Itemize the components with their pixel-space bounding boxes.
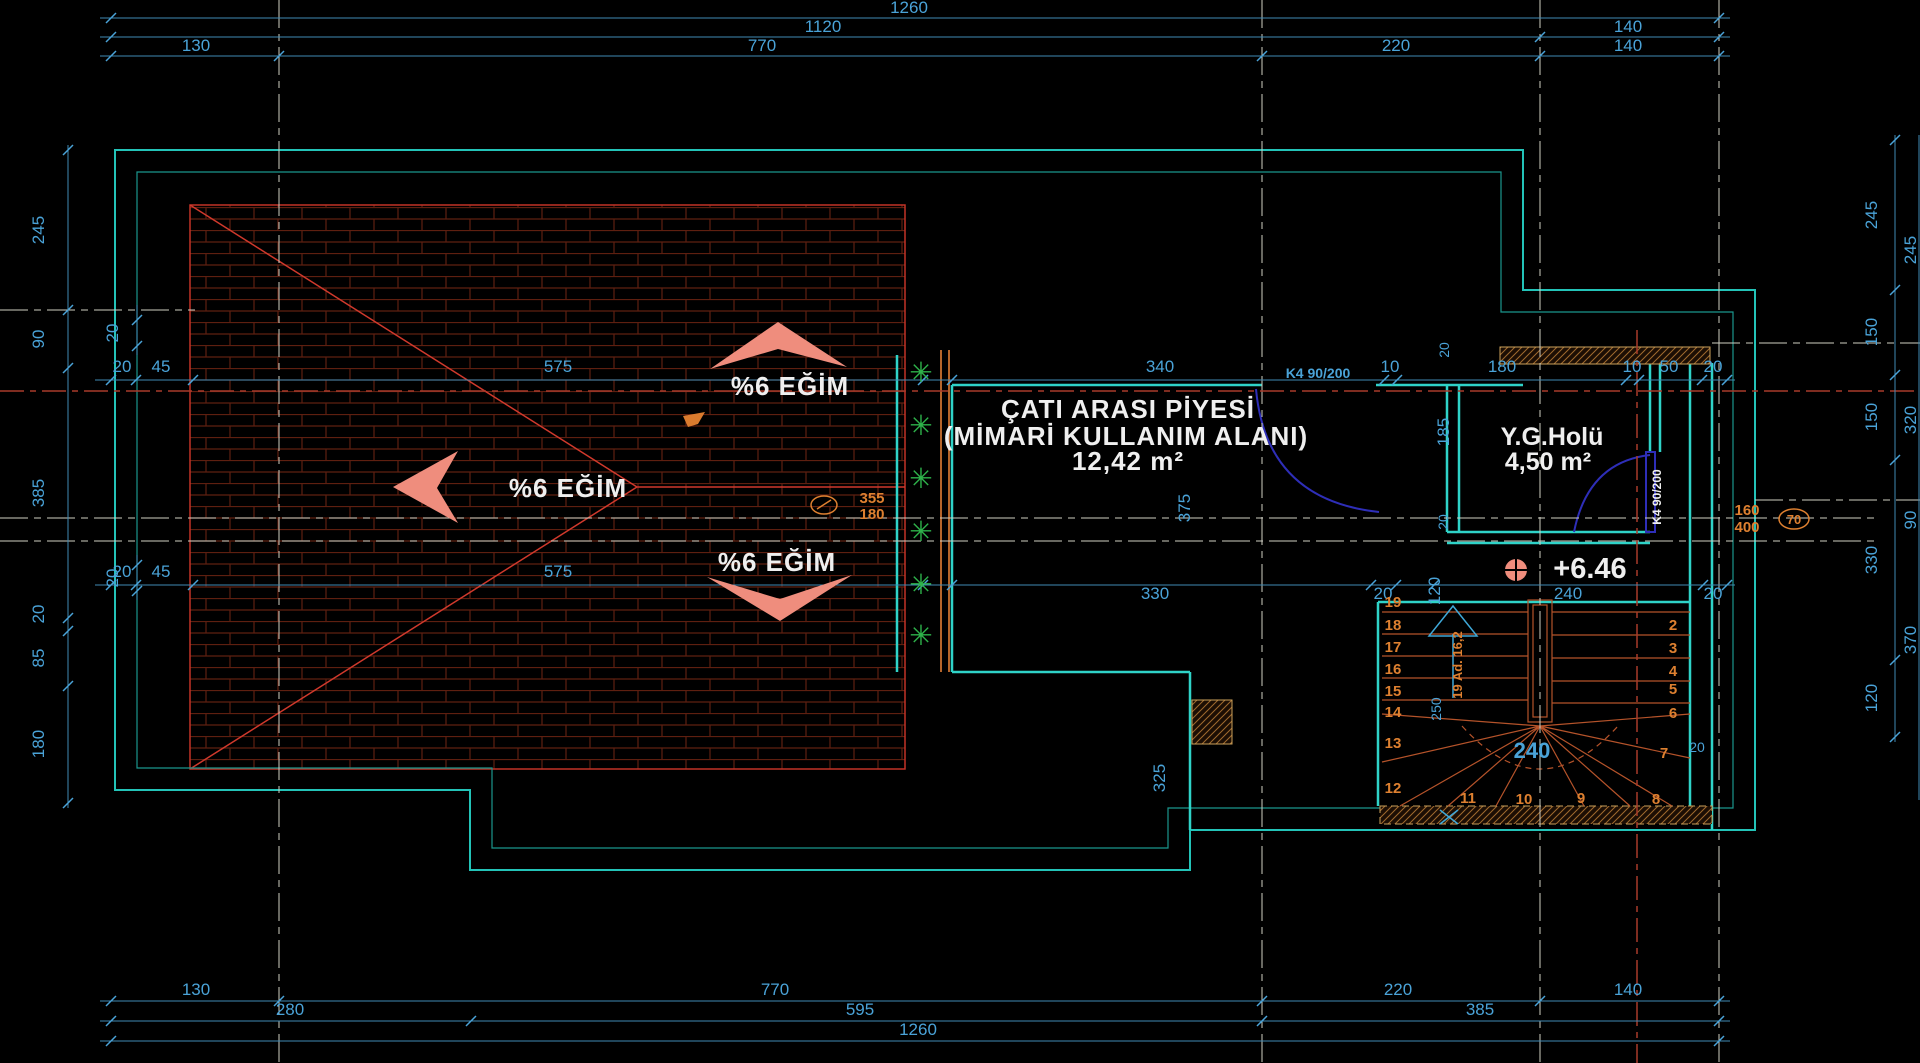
dim-label: 245	[1901, 236, 1920, 264]
hall-area: 4,50 m²	[1505, 448, 1591, 476]
hall-name: Y.G.Holü	[1501, 423, 1604, 451]
step-number: 19	[1385, 594, 1402, 611]
dim-label: 20	[103, 324, 122, 343]
dim-label: 240	[1554, 584, 1582, 603]
step-number: 6	[1669, 705, 1677, 722]
plant-icon: ✳	[909, 569, 932, 600]
step-number: 4	[1669, 663, 1678, 680]
duct-diameter: 70	[1787, 512, 1801, 527]
step-number: 10	[1516, 791, 1533, 808]
dim-label: 220	[1382, 36, 1410, 55]
dim-label: 595	[846, 1000, 874, 1019]
step-number: 9	[1577, 790, 1585, 807]
dim-label: 20	[1689, 739, 1705, 755]
slope-label-left: %6 EĞİM	[509, 473, 627, 503]
dim-label: 1260	[890, 0, 928, 17]
step-number: 15	[1385, 683, 1402, 700]
dim-label: 140	[1614, 980, 1642, 999]
dim-label: 20	[113, 562, 132, 581]
dim-label: 20	[1435, 514, 1451, 530]
dim-label: 45	[152, 357, 171, 376]
dim-label: 140	[1614, 17, 1642, 36]
step-number: 16	[1385, 661, 1402, 678]
step-number: 13	[1385, 735, 1402, 752]
dim-label: 245	[1862, 201, 1881, 229]
step-number: 17	[1385, 639, 1402, 656]
dim-label: 120	[1862, 684, 1881, 712]
dim-label: 1120	[805, 17, 842, 36]
dim-label: 120	[1425, 577, 1444, 605]
dim-label: 340	[1146, 357, 1174, 376]
step-number: 3	[1669, 640, 1677, 657]
dim-label: 45	[152, 562, 171, 581]
dim-label: 330	[1862, 546, 1881, 574]
dim-label: 10	[1623, 357, 1642, 376]
dim-label: 10	[1381, 357, 1400, 376]
dim-label: 280	[276, 1000, 304, 1019]
dim-label: 20	[29, 605, 48, 624]
dim-label: 385	[1466, 1000, 1494, 1019]
door-tag-top: K4 90/200	[1286, 365, 1351, 381]
step-number: 7	[1660, 745, 1668, 762]
step-number: 8	[1652, 791, 1660, 808]
stair-width-label: 240	[1514, 738, 1551, 763]
dim-label: 85	[29, 649, 48, 668]
dim-label: 130	[182, 980, 210, 999]
dim-label: 90	[1901, 511, 1920, 530]
dim-label: 140	[1614, 36, 1642, 55]
plant-icon: ✳	[909, 516, 932, 547]
beam-hatch	[1500, 347, 1710, 364]
roof-offset-top: 355	[859, 490, 884, 507]
plant-icon: ✳	[909, 620, 932, 651]
dim-label: 330	[1141, 584, 1169, 603]
room-area: 12,42 m²	[1072, 446, 1184, 476]
dim-label: 320	[1901, 406, 1920, 434]
step-number: 5	[1669, 681, 1677, 698]
stair-going-label: 250	[1428, 697, 1444, 721]
duct-width: 160	[1734, 502, 1759, 519]
plant-icon: ✳	[909, 357, 932, 388]
slope-label-top: %6 EĞİM	[731, 371, 849, 401]
dim-label: 20	[1704, 584, 1723, 603]
dim-label: 180	[29, 730, 48, 758]
dim-label: 325	[1150, 764, 1169, 792]
dim-label: 375	[1175, 494, 1194, 522]
stair-riser-note: 19 Ad. 16,2	[1450, 631, 1465, 698]
dim-label: 130	[182, 36, 210, 55]
plant-icon: ✳	[909, 410, 932, 441]
dim-label: 20	[1704, 357, 1723, 376]
dim-label: 180	[1488, 357, 1516, 376]
roof-offset-bottom: 180	[859, 506, 884, 523]
dim-label: 20	[113, 357, 132, 376]
plant-icon: ✳	[909, 463, 932, 494]
dim-label: 185	[1434, 418, 1453, 446]
dim-label: 385	[29, 479, 48, 507]
dim-label: 575	[544, 562, 572, 581]
dim-label: 370	[1901, 626, 1920, 654]
dim-label: 150	[1862, 318, 1881, 346]
room-title: ÇATI ARASI PİYESİ	[1001, 394, 1255, 424]
slope-label-bottom: %6 EĞİM	[718, 547, 836, 577]
floorplan-canvas: ✳ ✳ ✳ ✳ ✳ ✳ 1260 1120 140 130 770 220 14…	[0, 0, 1920, 1063]
dim-label: 245	[29, 216, 48, 244]
dim-label: 1260	[899, 1020, 937, 1039]
dim-label: 770	[761, 980, 789, 999]
dim-label: 90	[29, 330, 48, 349]
stair-floor-hatch	[1380, 806, 1712, 824]
level-value: +6.46	[1553, 553, 1626, 585]
dim-label: 770	[748, 36, 776, 55]
cad-drawing-stage: ✳ ✳ ✳ ✳ ✳ ✳ 1260 1120 140 130 770 220 14…	[0, 0, 1920, 1063]
dim-label: 50	[1660, 357, 1679, 376]
duct-height: 400	[1734, 519, 1759, 536]
dim-label: 20	[1436, 342, 1452, 358]
dim-label: 220	[1384, 980, 1412, 999]
step-number: 12	[1385, 780, 1402, 797]
door-tag-side: K4 90/200	[1650, 469, 1664, 525]
dim-label: 575	[544, 357, 572, 376]
step-number: 18	[1385, 617, 1402, 634]
step-number: 2	[1669, 617, 1677, 634]
step-number: 14	[1385, 704, 1402, 721]
dim-label: 150	[1862, 403, 1881, 431]
pier-hatch	[1192, 700, 1232, 744]
step-number: 11	[1460, 790, 1476, 807]
